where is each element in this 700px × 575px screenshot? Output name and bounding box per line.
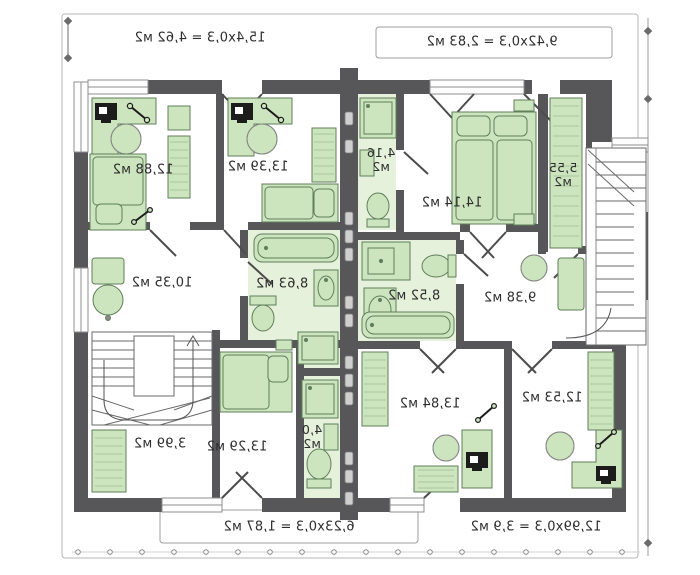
- sink-icon: [314, 270, 338, 306]
- wardrobe-icon: [168, 136, 190, 198]
- wardrobe-icon: [362, 352, 388, 426]
- lamp-icon: [476, 404, 497, 423]
- toilet-icon: [422, 255, 456, 277]
- toilet-icon: [307, 449, 331, 488]
- bed-icon: [452, 112, 536, 224]
- wardrobe-icon: [414, 466, 458, 492]
- chair-icon: [247, 124, 277, 154]
- chair-icon: [111, 124, 141, 154]
- chair-icon: [93, 285, 123, 321]
- computer-icon: [231, 103, 253, 123]
- toilet-icon: [250, 296, 276, 331]
- floor-plan: 15,4x0,3 = 4,62 м2 9,42x0,3 = 2,83 м2 6,…: [0, 0, 700, 575]
- armchair-icon: [92, 258, 124, 284]
- bed-icon: [262, 184, 338, 222]
- chair-icon: [546, 432, 574, 460]
- nightstand-icon: [514, 100, 534, 111]
- floor-plan-drawing: [0, 0, 700, 575]
- computer-icon: [95, 103, 117, 123]
- chair-icon: [521, 255, 547, 281]
- wardrobe-icon: [312, 128, 336, 182]
- wardrobe-icon: [92, 430, 126, 492]
- wardrobe-icon: [550, 98, 582, 248]
- counter-sink-icon: [362, 242, 410, 280]
- bed-icon: [220, 352, 292, 412]
- nightstand-icon: [276, 340, 292, 350]
- shelf-icon: [168, 106, 190, 130]
- toilet-icon: [367, 193, 389, 227]
- sink-icon: [360, 150, 374, 176]
- shower-icon: [360, 98, 396, 138]
- sink-icon: [324, 424, 338, 450]
- nightstand-icon: [514, 214, 534, 225]
- bench-icon: [558, 258, 584, 310]
- bathtub-icon: [254, 234, 338, 262]
- staircase-left: [92, 332, 212, 425]
- chair-icon: [433, 435, 459, 461]
- wardrobe-icon: [588, 352, 614, 430]
- shower-icon: [302, 380, 338, 418]
- bathtub-icon: [362, 312, 454, 338]
- shower-icon: [298, 332, 338, 364]
